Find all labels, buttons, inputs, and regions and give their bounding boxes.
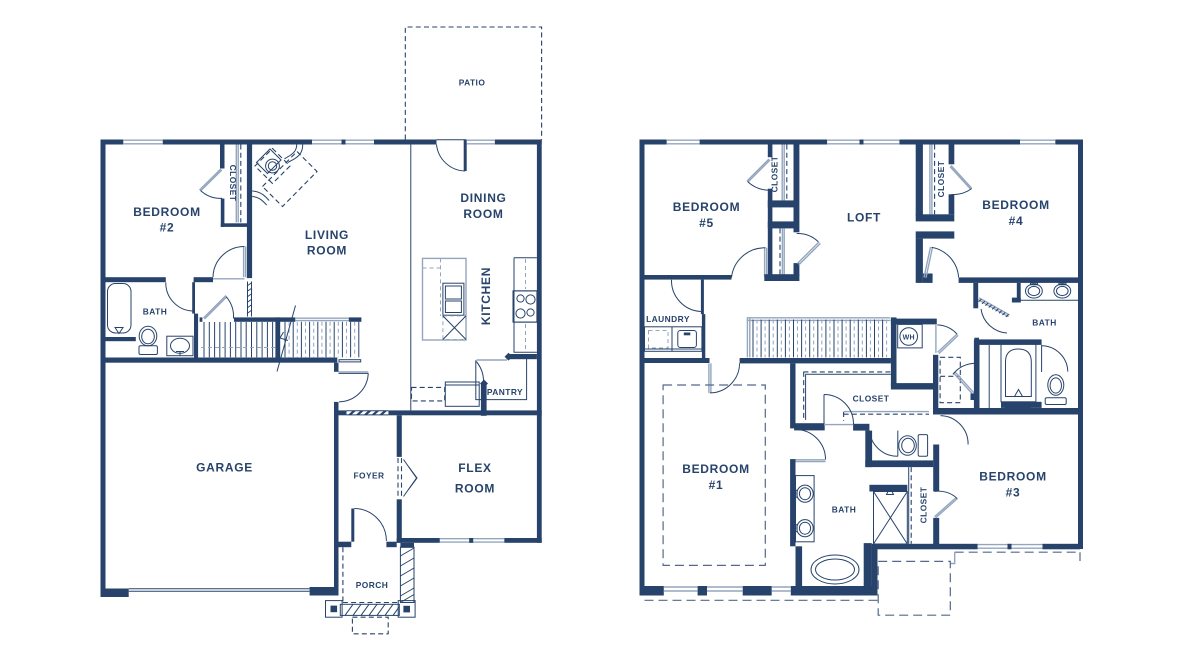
svg-text:LOFT: LOFT (847, 211, 881, 225)
svg-text:#3: #3 (1006, 486, 1021, 500)
svg-text:BEDROOM: BEDROOM (682, 462, 750, 476)
svg-text:BEDROOM: BEDROOM (979, 470, 1047, 484)
svg-text:GARAGE: GARAGE (196, 461, 253, 475)
svg-text:BEDROOM: BEDROOM (982, 198, 1050, 212)
svg-text:ROOM: ROOM (455, 482, 495, 496)
svg-text:BEDROOM: BEDROOM (673, 200, 741, 214)
svg-text:#4: #4 (1009, 214, 1024, 228)
svg-text:ROOM: ROOM (307, 244, 347, 258)
svg-text:BEDROOM: BEDROOM (133, 205, 201, 219)
svg-text:BATH: BATH (832, 505, 856, 515)
svg-text:LAUNDRY: LAUNDRY (646, 314, 690, 324)
svg-text:CLOSET: CLOSET (853, 394, 890, 404)
svg-text:#2: #2 (160, 221, 175, 235)
svg-text:ROOM: ROOM (463, 207, 503, 221)
svg-text:BATH: BATH (143, 307, 167, 317)
svg-text:CLOSET: CLOSET (919, 486, 929, 523)
svg-text:BATH: BATH (1032, 318, 1056, 328)
svg-text:CLOSET: CLOSET (936, 160, 946, 197)
svg-text:DINING: DINING (460, 191, 506, 205)
svg-text:CLOSET: CLOSET (770, 155, 780, 192)
svg-text:FLEX: FLEX (458, 461, 491, 475)
svg-text:FOYER: FOYER (353, 471, 384, 481)
svg-text:CLOSET: CLOSET (228, 165, 238, 202)
svg-text:#1: #1 (709, 478, 724, 492)
svg-text:PANTRY: PANTRY (487, 387, 523, 397)
svg-text:WH: WH (903, 335, 915, 342)
svg-text:PORCH: PORCH (356, 580, 389, 590)
svg-text:#5: #5 (699, 216, 714, 230)
svg-text:PATIO: PATIO (459, 78, 486, 88)
svg-text:LIVING: LIVING (305, 228, 349, 242)
svg-text:KITCHEN: KITCHEN (479, 267, 493, 325)
